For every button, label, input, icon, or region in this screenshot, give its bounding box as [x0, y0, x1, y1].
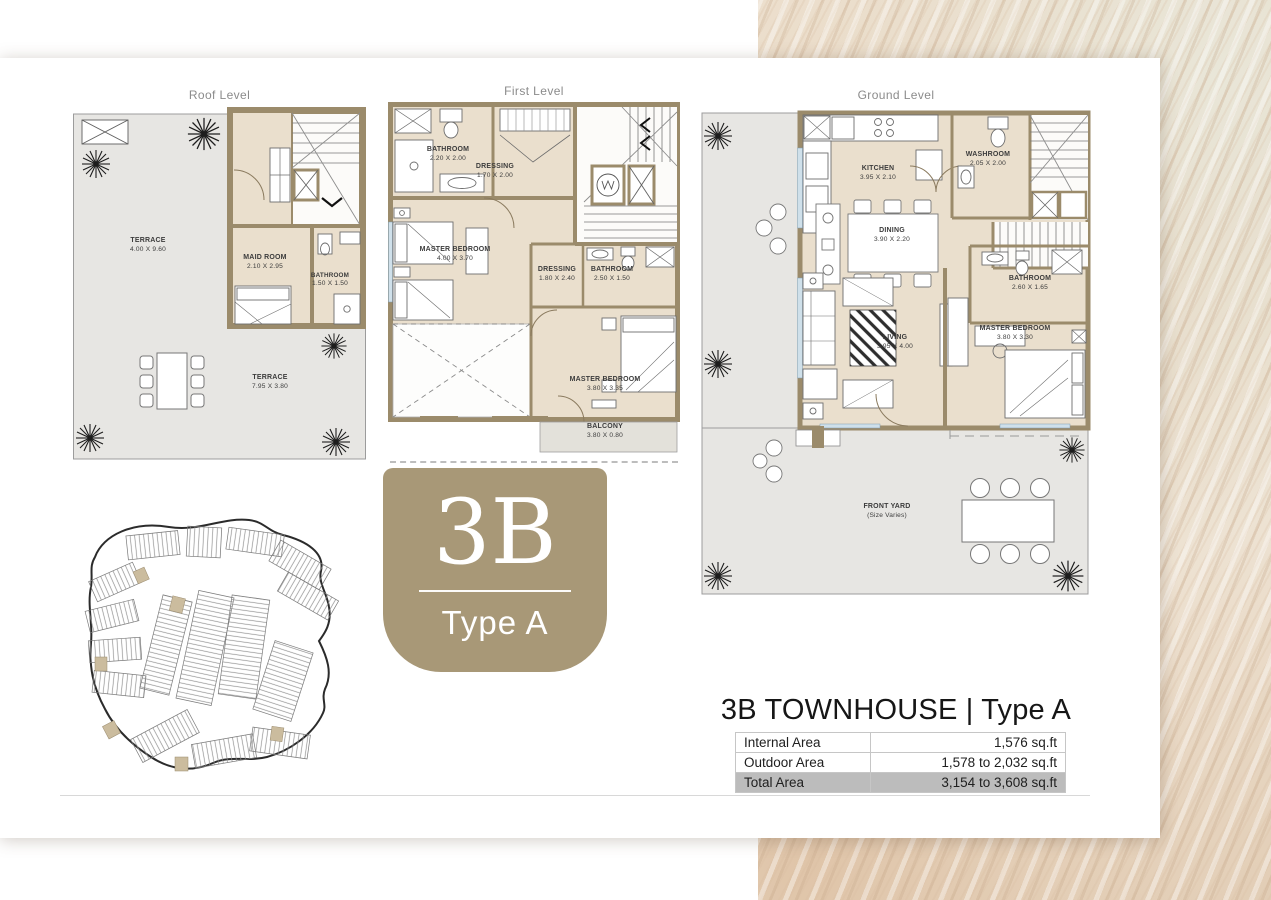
- void: [393, 324, 530, 417]
- tree-icon: [704, 122, 732, 150]
- room-label-bathroom: BATHROOM2.20 X 2.00: [393, 146, 503, 163]
- maid-room-bed: [235, 286, 291, 324]
- window: [798, 278, 803, 378]
- room-label-bathroom: BATHROOM2.60 X 1.65: [985, 275, 1075, 292]
- tree-icon: [188, 118, 220, 150]
- room-label-master-bedroom-2: MASTER BEDROOM3.80 X 3.35: [545, 376, 665, 393]
- window: [1000, 424, 1070, 428]
- room-label-kitchen: KITCHEN3.95 X 2.10: [823, 165, 933, 182]
- room-label-terrace-2: TERRACE7.95 X 3.80: [215, 374, 325, 391]
- room-label-front-yard: FRONT YARD(Size Varies): [832, 503, 942, 520]
- room-label-balcony: BALCONY3.80 X 0.80: [550, 423, 660, 440]
- window: [798, 148, 803, 228]
- dimension-dash-line: [390, 461, 678, 463]
- room-label-maid-room: MAID ROOM2.10 X 2.95: [210, 254, 320, 271]
- footer-divider: [60, 795, 1090, 796]
- window: [389, 222, 393, 302]
- room-label-bathroom-2: BATHROOM2.50 X 1.50: [567, 266, 657, 283]
- shaft: [1032, 192, 1086, 218]
- room-label-dressing: DRESSING1.70 X 2.00: [450, 163, 540, 180]
- room-label-washroom: WASHROOM2.05 X 2.00: [943, 151, 1033, 168]
- wardrobe: [270, 148, 290, 202]
- outdoor-dining-set: [962, 479, 1054, 564]
- room-label-terrace: TERRACE4.00 X 9.60: [93, 237, 203, 254]
- tree-icon: [704, 350, 732, 378]
- unit-badge-type: Type A: [383, 604, 607, 642]
- outdoor-table-set: [140, 353, 204, 409]
- shaft: [294, 170, 318, 200]
- tree-icon: [82, 150, 110, 178]
- tree-icon: [704, 562, 732, 590]
- window: [820, 424, 880, 428]
- first-level-title: First Level: [388, 84, 680, 98]
- area-value: 3,154 to 3,608 sq.ft: [871, 773, 1066, 793]
- ground-level-title: Ground Level: [700, 88, 1092, 102]
- wall: [420, 416, 458, 422]
- area-table: Internal Area 1,576 sq.ft Outdoor Area 1…: [735, 732, 1066, 793]
- shaft: [629, 166, 654, 204]
- ground-level-plan: Ground Level: [700, 88, 1092, 603]
- tree-icon: [1053, 561, 1084, 592]
- area-label: Internal Area: [736, 733, 871, 753]
- unit-badge: 3B Type A: [383, 468, 607, 672]
- first-level-plan: First Level: [388, 84, 680, 464]
- porch-column: [812, 426, 824, 448]
- site-plan-drawing: [75, 505, 375, 795]
- tree-icon: [76, 424, 104, 452]
- table-row-internal-area: Internal Area 1,576 sq.ft: [736, 733, 1066, 753]
- roof-level-title: Roof Level: [72, 88, 367, 102]
- tree-icon: [321, 333, 346, 358]
- area-label: Outdoor Area: [736, 753, 871, 773]
- side-yard: [702, 113, 800, 428]
- area-label: Total Area: [736, 773, 871, 793]
- tree-icon: [1059, 437, 1084, 462]
- table-row-outdoor-area: Outdoor Area 1,578 to 2,032 sq.ft: [736, 753, 1066, 773]
- page-title: 3B TOWNHOUSE | Type A: [700, 694, 1092, 727]
- room-label-dining: DINING3.90 X 2.20: [837, 227, 947, 244]
- roof-level-plan: Roof Level: [72, 88, 367, 468]
- planter-box: [82, 120, 128, 144]
- unit-badge-divider: [419, 590, 571, 592]
- tree-icon: [322, 428, 350, 456]
- washer-shaft: [592, 166, 624, 204]
- stairs: [575, 107, 677, 244]
- area-value: 1,578 to 2,032 sq.ft: [871, 753, 1066, 773]
- room-label-master-bedroom: MASTER BEDROOM3.80 X 3.30: [955, 325, 1075, 342]
- area-value: 1,576 sq.ft: [871, 733, 1066, 753]
- unit-badge-number: 3B: [383, 488, 607, 578]
- wall: [492, 416, 548, 422]
- room-label-bathroom: BATHROOM1.50 X 1.50: [285, 272, 375, 288]
- table-row-total-area: Total Area 3,154 to 3,608 sq.ft: [736, 773, 1066, 793]
- site-plan: [75, 505, 375, 795]
- room-label-living: LIVING3.95 X 4.00: [840, 334, 950, 351]
- brochure-page: Roof Level: [0, 0, 1271, 900]
- room-label-master-bedroom: MASTER BEDROOM4.00 X 3.70: [395, 246, 515, 263]
